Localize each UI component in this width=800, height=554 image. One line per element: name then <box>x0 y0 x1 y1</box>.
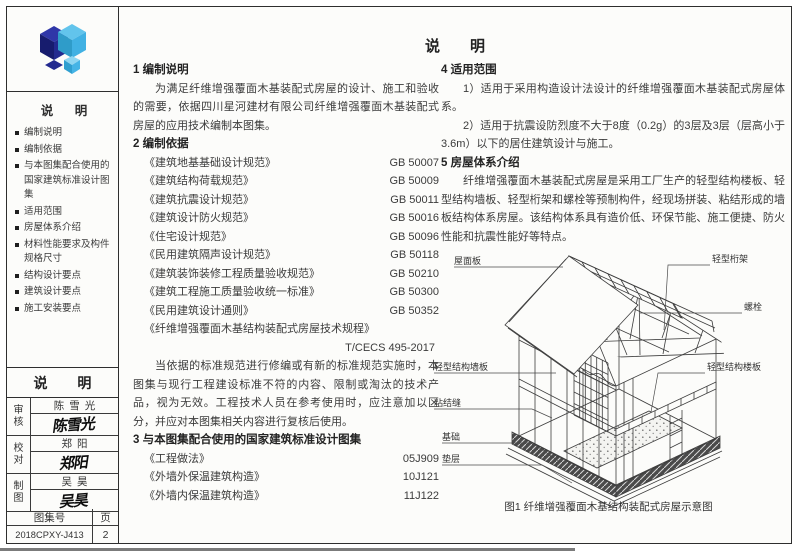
atlas-item: 《外墙内保温建筑构造》11J122 <box>133 487 439 506</box>
signature-table: 审核 陈雪光 陈雪光 校对 郑阳 郑阳 制图 吴昊 吴昊 <box>7 398 118 509</box>
right-column: 4 适用范围 1）适用于采用构造设计法设计的纤维增强覆面木基装配式房屋体系。 2… <box>441 61 785 246</box>
signature-cell: 郑阳 <box>31 452 118 473</box>
section-5-heading: 5 房屋体系介绍 <box>441 154 785 173</box>
section-3-heading: 3 与本图集配合使用的国家建筑标准设计图集 <box>133 431 439 450</box>
square-bullet-icon <box>15 243 19 247</box>
table-of-contents: 说 明 编制说明 编制依据 与本图集配合使用的国家建筑标准设计图集 适用范围 房… <box>7 91 118 367</box>
role-label: 审核 <box>7 398 31 435</box>
standard-item: 《建筑装饰装修工程质量验收规范》GB 50210 <box>133 265 439 284</box>
page-label: 页 <box>93 509 118 525</box>
signature-scribble: 陈雪光 <box>52 414 97 435</box>
toc-item: 建筑设计要点 <box>15 285 113 300</box>
toc-item: 编制说明 <box>15 126 113 141</box>
standard-item: 《纤维增强覆面木基结构装配式房屋技术规程》 <box>133 320 439 339</box>
checker-name: 郑阳 <box>31 436 118 452</box>
scan-edge-artifact <box>0 548 575 551</box>
page-number: 2 <box>93 526 118 543</box>
square-bullet-icon <box>15 131 19 135</box>
atlas-item: 《外墙外保温建筑构造》10J121 <box>133 468 439 487</box>
section-4-heading: 4 适用范围 <box>441 61 785 80</box>
square-bullet-icon <box>15 148 19 152</box>
square-bullet-icon <box>15 274 19 278</box>
square-bullet-icon <box>15 226 19 230</box>
standard-item: 《建筑工程施工质量验收统一标准》GB 50300 <box>133 283 439 302</box>
atlas-number-row: 2018CPXY-J413 2 <box>7 526 118 543</box>
foundation-label: 基础 <box>442 431 460 442</box>
roof-plane <box>505 256 638 374</box>
roof <box>505 256 715 377</box>
blue-diamond-cluster-icon <box>28 18 98 80</box>
section-2-note: 当依据的标准规范进行修编或有新的标准规范实施时，本图集与现行工程建设标准不符的内… <box>133 357 439 431</box>
roof-panel-label: 屋面板 <box>454 255 481 266</box>
signature-row: 审核 陈雪光 陈雪光 <box>7 398 118 436</box>
square-bullet-icon <box>15 164 19 168</box>
signature-cell: 吴昊 <box>31 490 118 511</box>
reviewer-name: 陈雪光 <box>31 398 118 414</box>
role-label: 校对 <box>7 436 31 473</box>
sheet-title-block: 说 明 <box>7 367 118 398</box>
sidebar: 说 明 编制说明 编制依据 与本图集配合使用的国家建筑标准设计图集 适用范围 房… <box>7 7 119 543</box>
toc-item: 材料性能要求及构件规格尺寸 <box>15 238 113 267</box>
section-1-body: 为满足纤维增强覆面木基装配式房屋的设计、施工和验收的需要，依据四川星河建材有限公… <box>133 80 439 136</box>
standard-item: 《民用建筑设计通则》GB 50352 <box>133 302 439 321</box>
toc-item: 施工安装要点 <box>15 302 113 317</box>
signature-row: 校对 郑阳 郑阳 <box>7 436 118 474</box>
standard-item: 《住宅设计规范》GB 50096 <box>133 228 439 247</box>
toc-item: 适用范围 <box>15 205 113 220</box>
toc-item: 与本图集配合使用的国家建筑标准设计图集 <box>15 159 113 203</box>
toc-title: 说 明 <box>15 100 113 119</box>
left-column: 1 编制说明 为满足纤维增强覆面木基装配式房屋的设计、施工和验收的需要，依据四川… <box>133 61 439 505</box>
atlas-number-header: 图集号 页 <box>7 509 118 526</box>
figure-caption: 图1 纤维增强覆面木基结构装配式房屋示意图 <box>466 499 751 514</box>
light-truss-label: 轻型桁架 <box>712 253 748 264</box>
house-structure-diagram: 屋面板 轻型桁架 螺栓 轻型结构楼板 轻型结构墙板 粘结缝 基础 垫层 <box>424 246 792 508</box>
section-5-body: 纤维增强覆面木基装配式房屋是采用工厂生产的轻型结构楼板、轻型结构墙板、轻型桁架和… <box>441 172 785 246</box>
signature-scribble: 郑阳 <box>59 452 90 473</box>
standard-code: T/CECS 495-2017 <box>133 339 439 358</box>
signature-scribble: 吴昊 <box>59 490 90 511</box>
section-2-heading: 2 编制依据 <box>133 135 439 154</box>
standard-item: 《建筑抗震设计规范》GB 50011 <box>133 191 439 210</box>
role-label: 制图 <box>7 474 31 511</box>
atlas-number-label: 图集号 <box>7 509 93 525</box>
wall-panel-label: 轻型结构墙板 <box>434 361 488 372</box>
bond-joint-label: 粘结缝 <box>434 397 461 408</box>
section-1-heading: 1 编制说明 <box>133 61 439 80</box>
toc-item: 房屋体系介绍 <box>15 221 113 236</box>
standard-item: 《民用建筑隔声设计规范》GB 50118 <box>133 246 439 265</box>
drawing-sheet: 说 明 编制说明 编制依据 与本图集配合使用的国家建筑标准设计图集 适用范围 房… <box>6 6 792 544</box>
atlas-item: 《工程做法》05J909 <box>133 450 439 469</box>
toc-item: 结构设计要点 <box>15 269 113 284</box>
square-bullet-icon <box>15 210 19 214</box>
signature-cell: 陈雪光 <box>31 414 118 435</box>
drafter-name: 吴昊 <box>31 474 118 490</box>
floor-panel-label: 轻型结构楼板 <box>707 361 761 372</box>
main-content: 说 明 1 编制说明 为满足纤维增强覆面木基装配式房屋的设计、施工和验收的需要，… <box>119 7 791 543</box>
square-bullet-icon <box>15 290 19 294</box>
bolt-label: 螺栓 <box>744 301 762 312</box>
toc-item: 编制依据 <box>15 143 113 158</box>
section-4-item: 2）适用于抗震设防烈度不大于8度（0.2g）的3层及3层（层高小于3.6m）以下… <box>441 117 785 154</box>
signature-row: 制图 吴昊 吴昊 <box>7 474 118 512</box>
standard-item: 《建筑地基基础设计规范》GB 50007 <box>133 154 439 173</box>
atlas-number: 2018CPXY-J413 <box>7 526 93 543</box>
section-4-item: 1）适用于采用构造设计法设计的纤维增强覆面木基装配式房屋体系。 <box>441 80 785 117</box>
standard-item: 《建筑结构荷载规范》GB 50009 <box>133 172 439 191</box>
company-logo <box>7 7 118 92</box>
page-title: 说 明 <box>119 35 791 56</box>
standard-item: 《建筑设计防火规范》GB 50016 <box>133 209 439 228</box>
bedding-layer-label: 垫层 <box>442 453 460 464</box>
square-bullet-icon <box>15 307 19 311</box>
